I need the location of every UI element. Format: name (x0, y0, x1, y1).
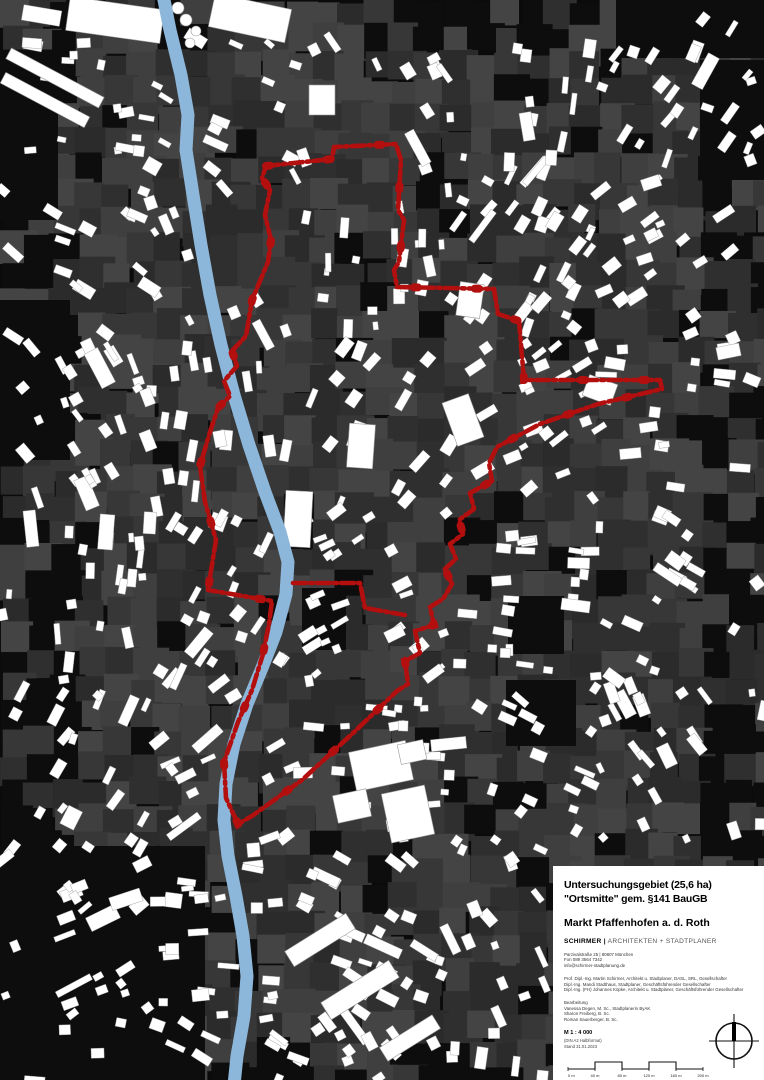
firm-address: Parzivalstraße 25 | 80807 München Fon 08… (564, 952, 756, 969)
scale-bar: 0 m40 m80 m120 m160 m200 m (564, 1055, 710, 1079)
svg-text:120 m: 120 m (643, 1073, 655, 1078)
partner-list: Prof. Dipl.-Ing. Martin Schirmer, Archit… (564, 976, 756, 993)
firm-name: SCHIRMER | ARCHITEKTEN + STADTPLANER (564, 938, 756, 945)
svg-text:200 m: 200 m (697, 1073, 709, 1078)
project-title: Untersuchungsgebiet (25,6 ha) "Ortsmitte… (564, 879, 756, 907)
svg-text:80 m: 80 m (618, 1073, 628, 1078)
project-title-line2: "Ortsmitte" gem. §141 BauGB (564, 893, 756, 907)
svg-text:160 m: 160 m (670, 1073, 682, 1078)
firm-name-suffix: ARCHITEKTEN + STADTPLANER (606, 938, 717, 945)
firm-name-bold: SCHIRMER | (564, 938, 606, 945)
address-line3: info@schirmer-stadtplanung.de (564, 963, 756, 969)
title-block: Untersuchungsgebiet (25,6 ha) "Ortsmitte… (553, 866, 764, 1080)
project-title-line1: Untersuchungsgebiet (25,6 ha) (564, 879, 756, 893)
svg-text:0 m: 0 m (568, 1073, 575, 1078)
svg-text:40 m: 40 m (591, 1073, 601, 1078)
north-arrow-icon (708, 1010, 760, 1072)
partner-line: Dipl.-Ing. (FH) Johannes Köpke, Architek… (564, 987, 756, 993)
municipality-name: Markt Pfaffenhofen a. d. Roth (564, 917, 756, 929)
city-plan-sheet: Untersuchungsgebiet (25,6 ha) "Ortsmitte… (0, 0, 764, 1080)
